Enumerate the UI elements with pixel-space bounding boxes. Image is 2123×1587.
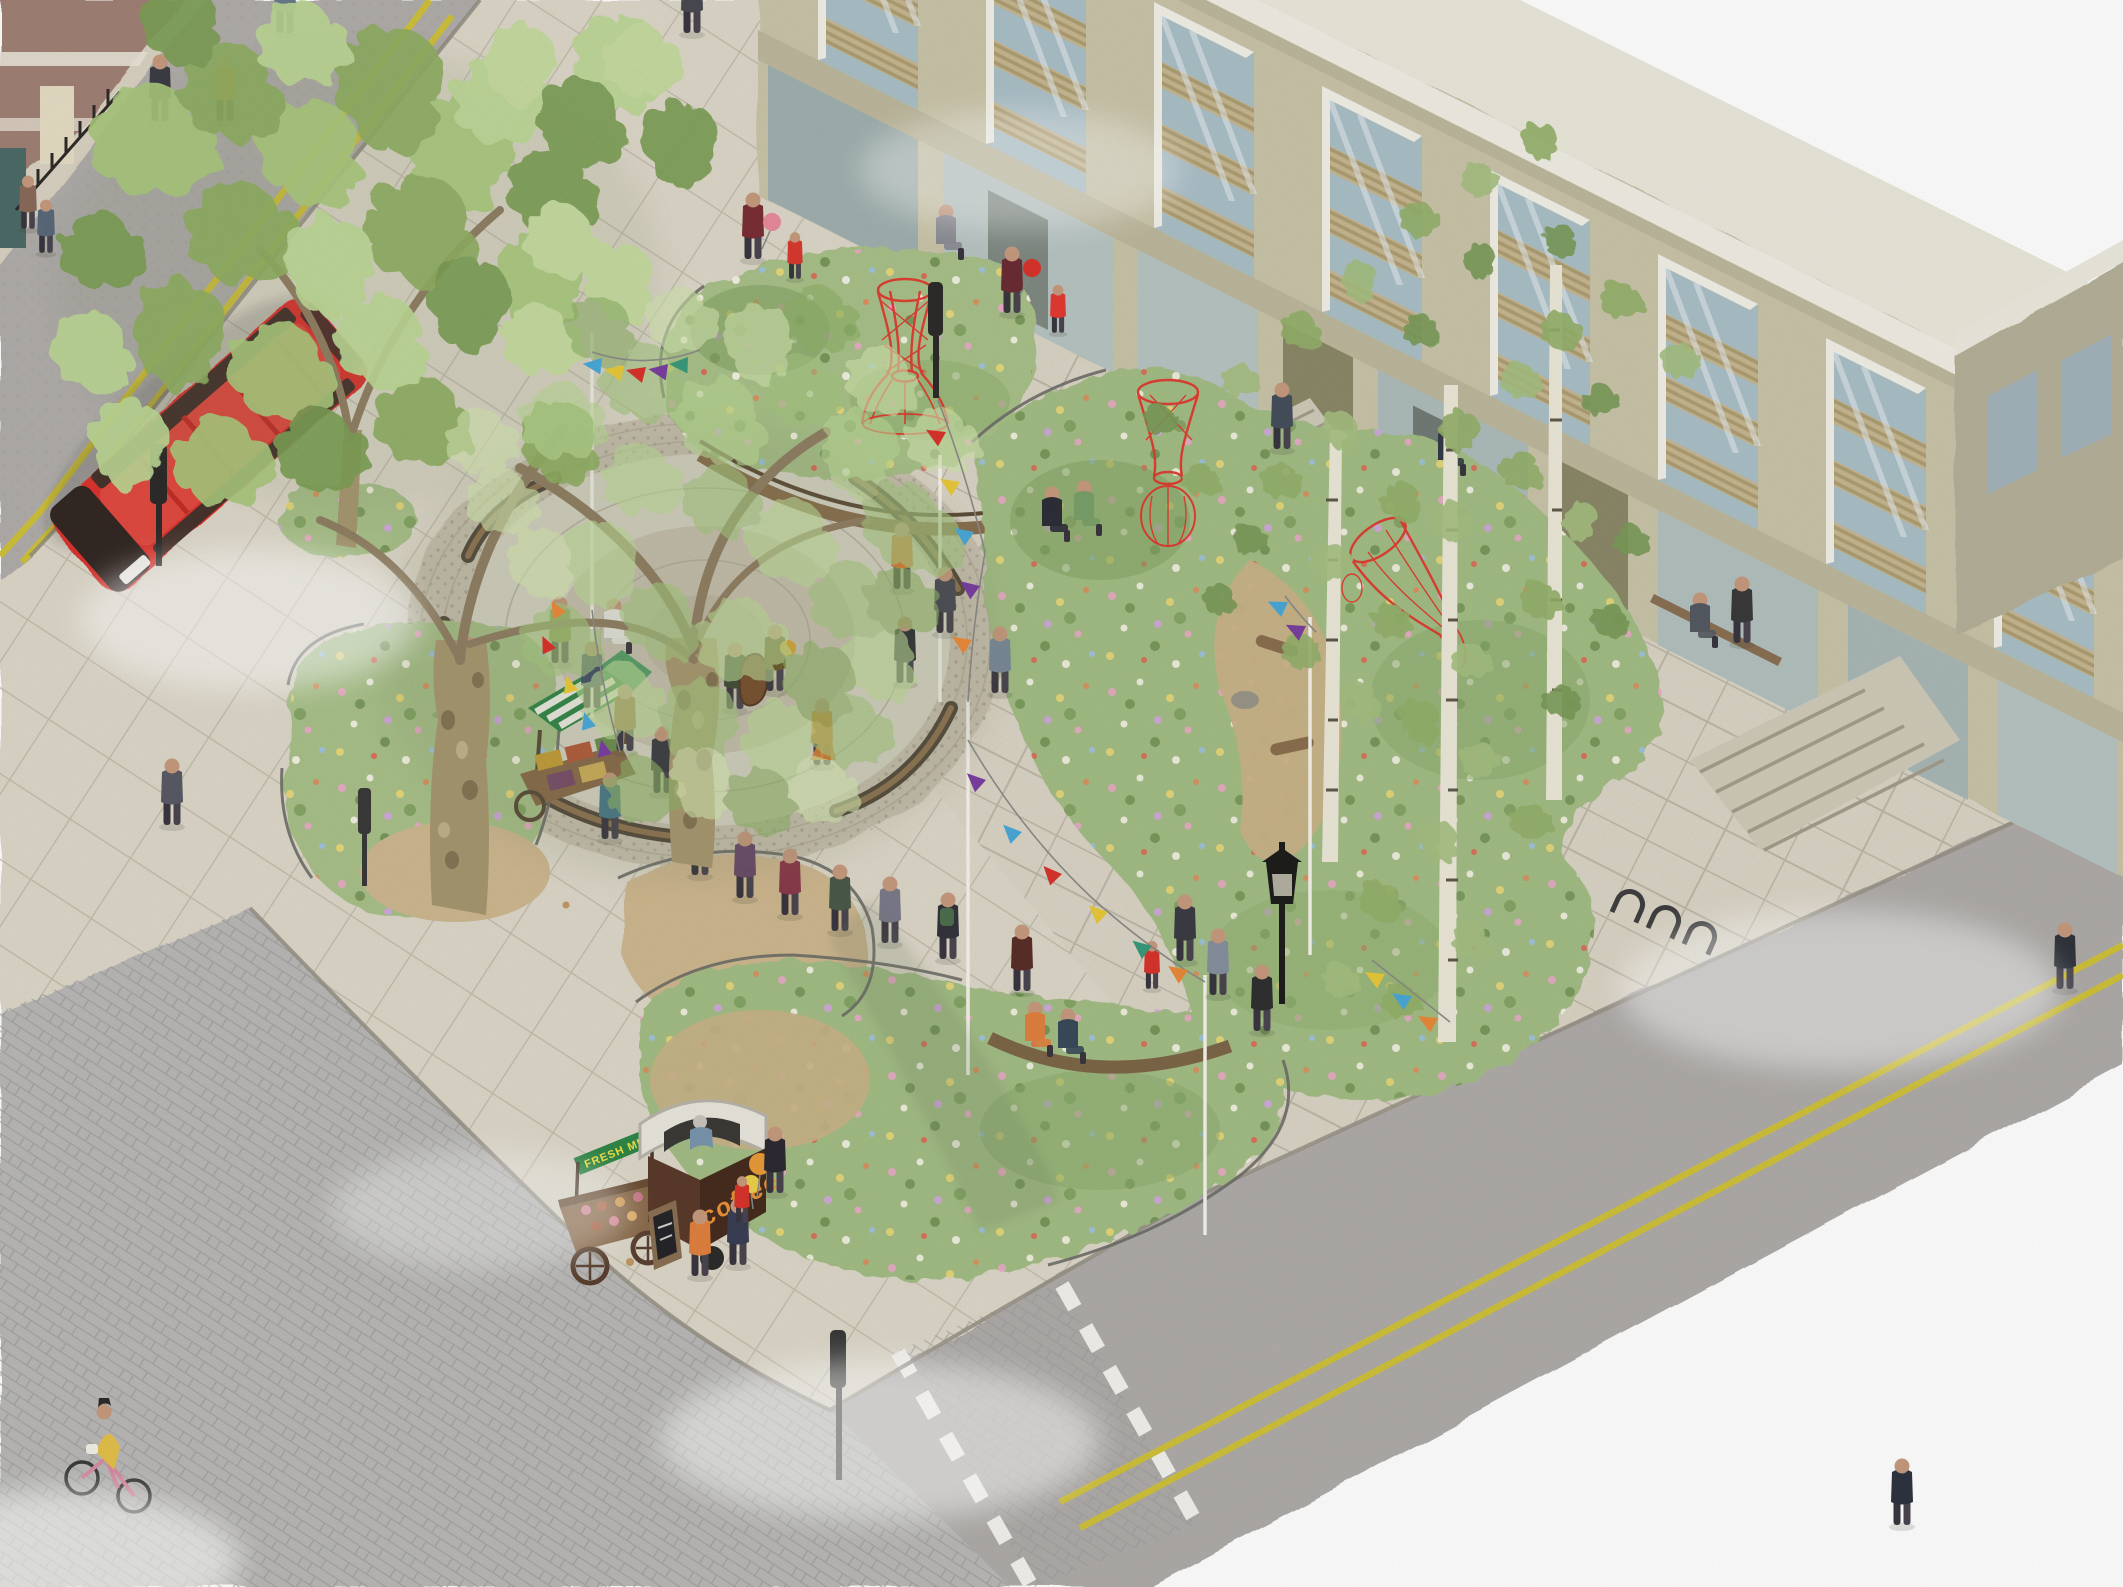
- square-illustration: FRESH MEAT coffee: [0, 0, 2123, 1587]
- paper-grain: [0, 0, 2123, 1587]
- illustration-canvas: FRESH MEAT coffee: [0, 0, 2123, 1587]
